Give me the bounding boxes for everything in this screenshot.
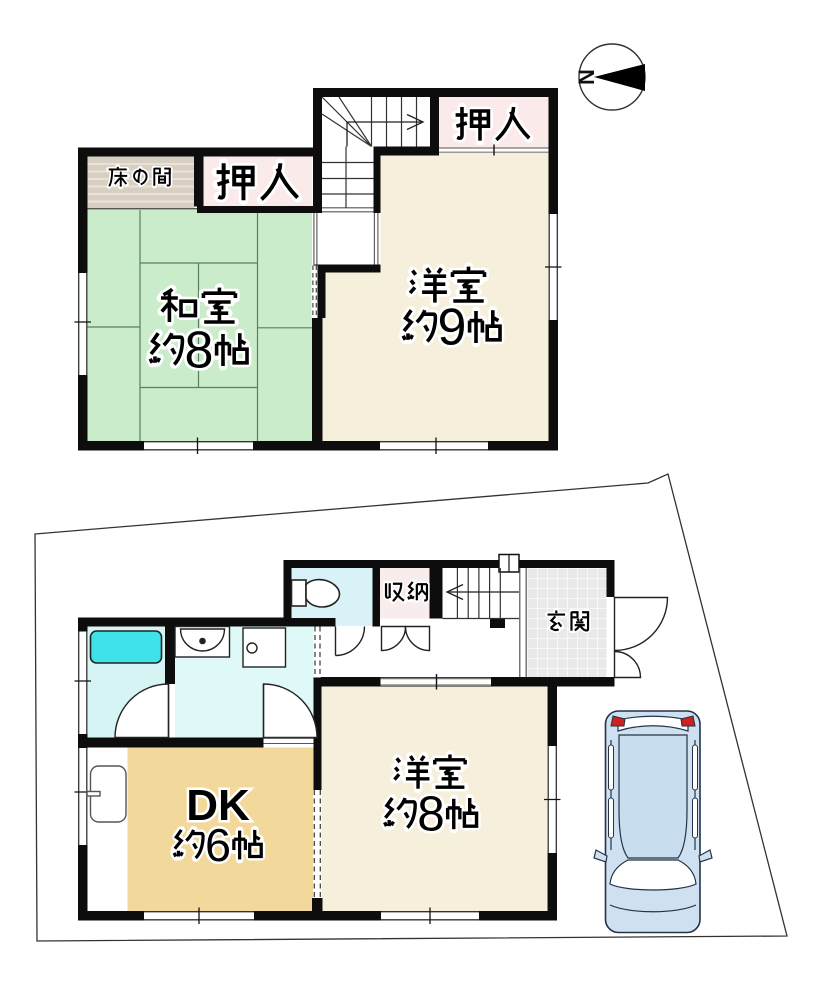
svg-text:6: 6: [205, 819, 231, 871]
svg-text:N: N: [574, 69, 599, 85]
svg-text:8: 8: [185, 322, 214, 380]
svg-text:9: 9: [438, 299, 467, 357]
svg-text:8: 8: [417, 787, 444, 842]
